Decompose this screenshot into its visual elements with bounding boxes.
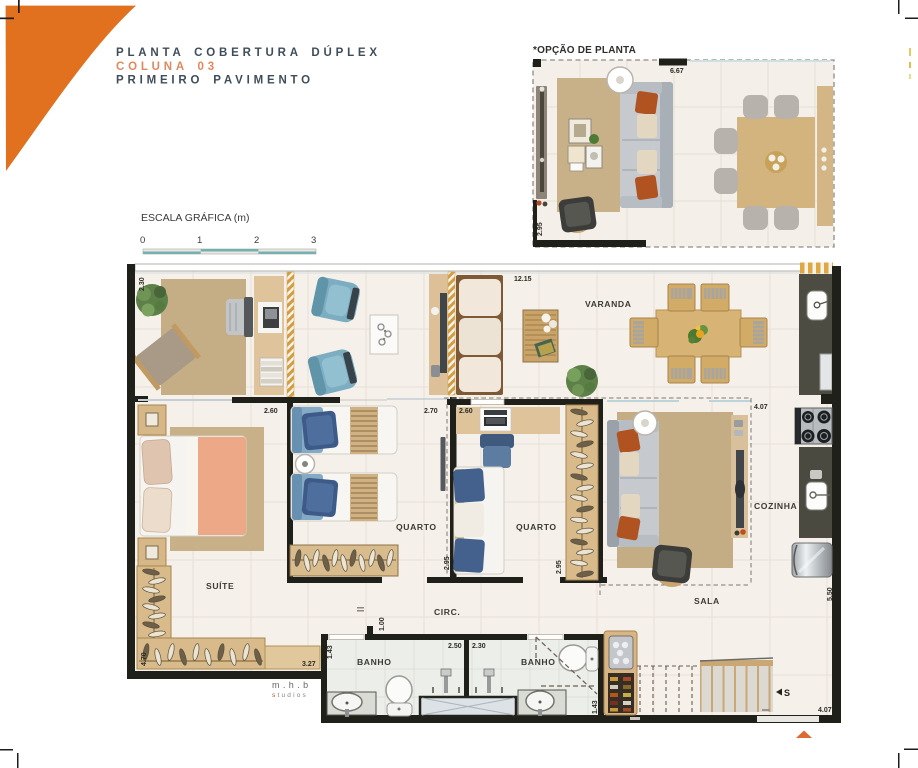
svg-text:QUARTO: QUARTO — [516, 522, 557, 532]
svg-text:4.70: 4.70 — [141, 652, 148, 666]
svg-text:m.h.b: m.h.b — [272, 680, 312, 690]
svg-text:COZINHA: COZINHA — [754, 501, 797, 511]
svg-text:*OPÇÃO DE PLANTA: *OPÇÃO DE PLANTA — [533, 43, 636, 56]
svg-text:2.60: 2.60 — [264, 408, 278, 415]
svg-text:1.00: 1.00 — [379, 617, 386, 631]
svg-text:2.95: 2.95 — [444, 556, 451, 570]
svg-text:2.95: 2.95 — [556, 560, 563, 574]
svg-text:ESCALA GRÁFICA (m): ESCALA GRÁFICA (m) — [141, 211, 250, 224]
svg-text:SUÍTE: SUÍTE — [206, 581, 234, 591]
svg-text:2.50: 2.50 — [448, 643, 462, 650]
svg-text:S: S — [784, 688, 790, 698]
svg-text:1.43: 1.43 — [327, 645, 334, 659]
svg-text:PLANTA COBERTURA DÚPLEX: PLANTA COBERTURA DÚPLEX — [116, 46, 381, 59]
svg-text:3: 3 — [311, 235, 316, 246]
svg-text:CIRC.: CIRC. — [434, 607, 460, 617]
svg-text:2.30: 2.30 — [472, 643, 486, 650]
svg-text:PRIMEIRO PAVIMENTO: PRIMEIRO PAVIMENTO — [116, 75, 314, 87]
svg-text:SALA: SALA — [694, 596, 720, 606]
svg-text:6.67: 6.67 — [670, 68, 684, 75]
svg-text:2.70: 2.70 — [424, 408, 438, 415]
svg-text:QUARTO: QUARTO — [396, 522, 437, 532]
svg-text:2: 2 — [254, 235, 259, 246]
svg-text:1: 1 — [197, 235, 202, 246]
svg-text:COLUNA 03: COLUNA 03 — [116, 61, 218, 73]
svg-text:studios: studios — [272, 692, 308, 699]
svg-text:2.95: 2.95 — [537, 222, 544, 236]
svg-text:5.50: 5.50 — [827, 587, 834, 601]
svg-text:0: 0 — [140, 235, 145, 246]
svg-text:1.43: 1.43 — [592, 700, 599, 714]
svg-text:4.07: 4.07 — [818, 707, 832, 714]
svg-text:2.30: 2.30 — [139, 277, 146, 291]
svg-text:BANHO: BANHO — [357, 657, 392, 667]
svg-text:12.15: 12.15 — [514, 276, 532, 283]
svg-text:VARANDA: VARANDA — [585, 299, 632, 309]
svg-text:BANHO: BANHO — [521, 657, 556, 667]
svg-text:4.07: 4.07 — [754, 404, 768, 411]
svg-text:2.60: 2.60 — [459, 408, 473, 415]
svg-text:3.27: 3.27 — [302, 661, 316, 668]
